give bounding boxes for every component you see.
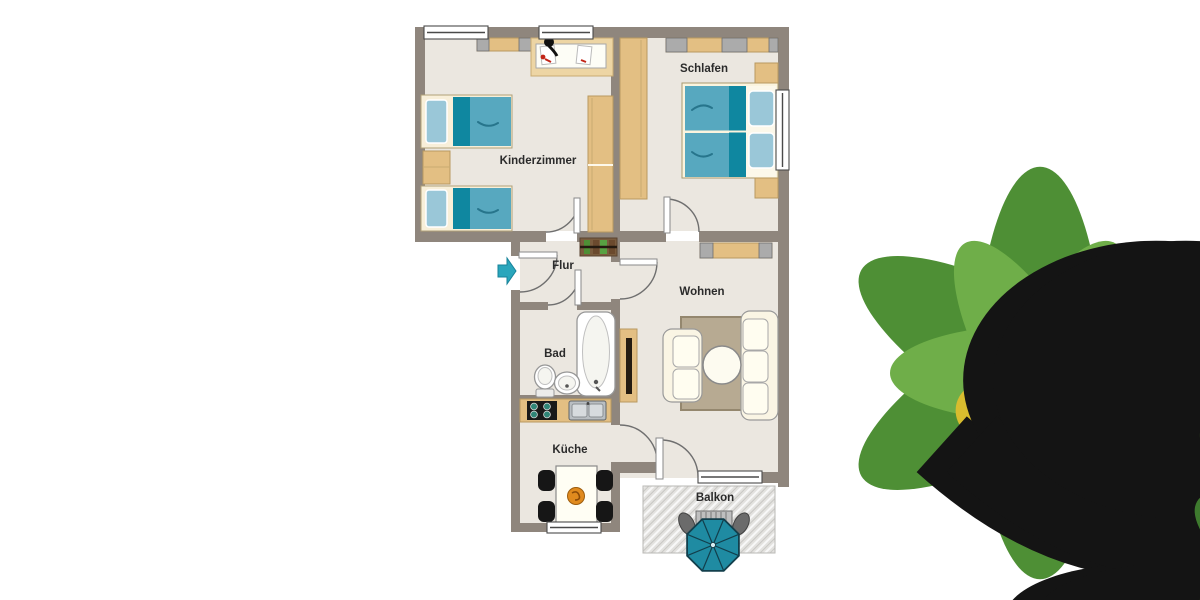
sofa-icon bbox=[663, 329, 702, 402]
sink-icon bbox=[555, 372, 580, 394]
room-label-schlafen: Schlafen bbox=[680, 63, 728, 75]
kitchen-sink-icon bbox=[569, 401, 606, 420]
room-label-flur: Flur bbox=[552, 260, 574, 272]
dining-table-icon bbox=[556, 466, 597, 527]
double-bed-icon bbox=[682, 83, 778, 178]
nightstand-icon bbox=[423, 151, 450, 184]
entrance-arrow-icon bbox=[498, 258, 516, 284]
wardrobe-icon bbox=[588, 96, 613, 232]
room-label-wohnen: Wohnen bbox=[679, 286, 724, 298]
sideboard-icon bbox=[666, 38, 778, 52]
window bbox=[424, 26, 488, 39]
room-label-balkon: Balkon bbox=[696, 492, 734, 504]
tv-board-icon bbox=[620, 329, 637, 402]
sideboard-icon bbox=[700, 243, 772, 258]
nightstand-icon bbox=[755, 178, 778, 198]
wardrobe-icon bbox=[620, 38, 647, 199]
shelf-with-plants-icon bbox=[580, 238, 617, 256]
bathtub-icon bbox=[577, 312, 615, 396]
chair-icon bbox=[538, 501, 555, 522]
desk-icon bbox=[531, 37, 613, 76]
room-label-kueche: Küche bbox=[552, 444, 587, 456]
umbrella-icon bbox=[687, 519, 739, 571]
chair-icon bbox=[538, 470, 555, 491]
coffee-table-icon bbox=[703, 346, 741, 384]
window bbox=[539, 26, 593, 39]
single-bed-icon bbox=[421, 95, 512, 148]
single-bed-icon bbox=[421, 186, 512, 231]
sofa-icon bbox=[741, 311, 778, 420]
room-label-kinderzimmer: Kinderzimmer bbox=[500, 155, 577, 167]
toilet-icon bbox=[535, 365, 556, 397]
sideboard-icon bbox=[477, 38, 531, 51]
nightstand-icon bbox=[755, 63, 778, 83]
window bbox=[547, 522, 601, 533]
window bbox=[776, 90, 789, 170]
chair-icon bbox=[596, 470, 613, 491]
stove-icon bbox=[527, 401, 557, 420]
floor-plan: Kinderzimmer Schlafen Flur Wohnen Bad Kü… bbox=[0, 0, 1200, 600]
chair-icon bbox=[596, 501, 613, 522]
room-label-bad: Bad bbox=[544, 348, 566, 360]
window bbox=[698, 471, 762, 483]
flower-icon bbox=[568, 488, 585, 505]
floor-plan-page: Kinderzimmer Schlafen Flur Wohnen Bad Kü… bbox=[0, 0, 1200, 600]
